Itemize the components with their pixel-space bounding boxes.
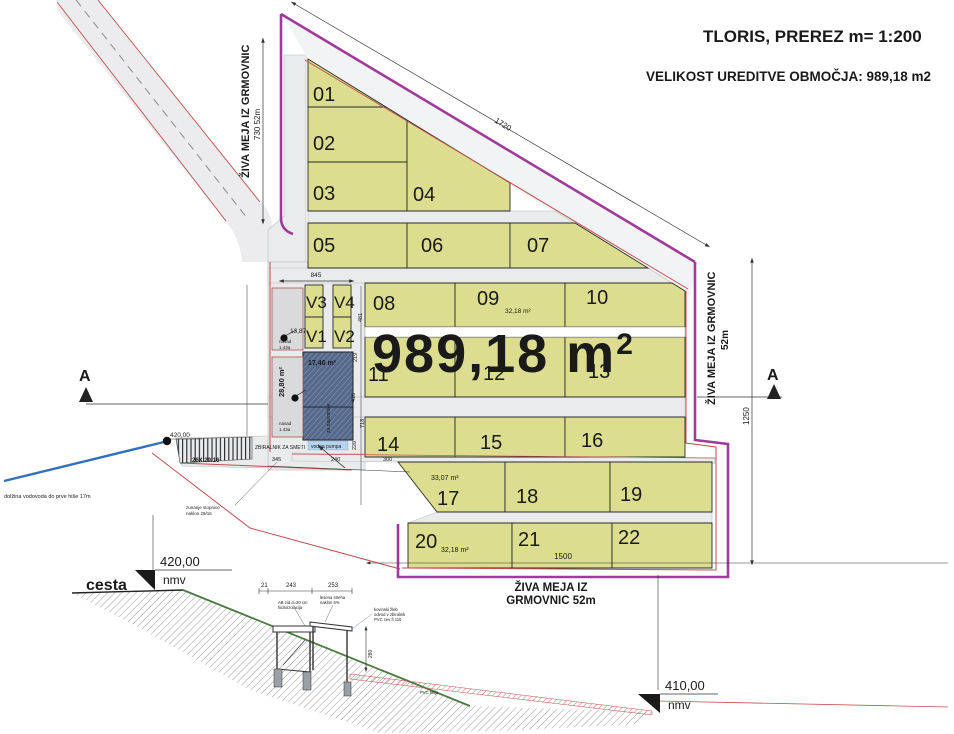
parcel-note-2: nasad xyxy=(279,421,292,426)
plot-label-21: 21 xyxy=(518,529,540,551)
plot-cell xyxy=(455,417,565,457)
dim-walk-345: 345 xyxy=(272,457,281,463)
plot-label-19: 19 xyxy=(620,484,642,506)
hedge-label-right: ŽIVA MEJA IZ GRMOVNIC xyxy=(705,272,718,405)
plot-label-11: 11 xyxy=(368,364,389,386)
plot-label-07: 07 xyxy=(527,235,549,257)
leader-1 xyxy=(295,609,305,626)
stairs-leader xyxy=(235,462,277,505)
page-title: TLORIS, PREREZ m= 1:200 xyxy=(703,27,922,46)
elev-top-value: 420,00 xyxy=(160,554,200,569)
plot-label-18: 18 xyxy=(516,486,538,508)
water-note: dolžina vodovoda do prve hiše 17m xyxy=(4,494,91,500)
site-plan-drawing: TLORIS, PREREZ m= 1:200 VELIKOST UREDITV… xyxy=(0,0,954,734)
drawing-svg: TLORIS, PREREZ m= 1:200 VELIKOST UREDITV… xyxy=(0,0,954,734)
note-red: PVC folija xyxy=(420,690,439,695)
note-blue-3: PVC cev fi 110 xyxy=(374,617,402,622)
v2-label: V2 xyxy=(334,327,355,346)
road-label: cesta xyxy=(86,577,127,594)
section-arrow-right xyxy=(767,384,781,399)
footing-3 xyxy=(344,682,351,696)
dim-stairs: 26X 29/16 xyxy=(192,458,220,464)
plot-label-12: 12 xyxy=(483,363,505,385)
plot-label-10: 10 xyxy=(586,287,608,309)
roof-slab-2 xyxy=(310,622,352,631)
plot-label-20: 20 xyxy=(415,531,437,553)
section-letter-left: A xyxy=(79,368,91,385)
plot-label-04: 04 xyxy=(413,184,435,206)
elev-bottom-unit: nmv xyxy=(668,698,691,712)
v1-label: V1 xyxy=(306,327,327,346)
dim-1500: 1500 xyxy=(554,552,572,561)
parcel-note-2b: 1.43a xyxy=(279,427,291,432)
water-pipe-line xyxy=(4,442,164,481)
road-elev-label: 420,00 xyxy=(170,432,190,439)
note-black-4: naklon 5% xyxy=(320,600,340,605)
section-arrow-left xyxy=(79,387,93,402)
dim-small-718: 718 xyxy=(360,419,366,428)
stairs-note-1: zunanje stopnice xyxy=(186,505,220,510)
plot-label-16: 16 xyxy=(581,430,603,452)
v3-label: V3 xyxy=(306,293,327,312)
plot-label-02: 02 xyxy=(313,133,335,155)
elev-top-unit: nmv xyxy=(163,573,186,587)
dim-walk-300: 300 xyxy=(383,457,392,463)
bins-note: ZBIRALNIK ZA SMETI xyxy=(255,445,305,451)
dim-21: 21 xyxy=(261,583,268,589)
plot-label-01: 01 xyxy=(313,84,335,106)
plot-cell xyxy=(455,283,565,327)
leader-blue xyxy=(352,614,372,629)
page-subtitle: VELIKOST UREDITVE OBMOČJA: 989,18 m2 xyxy=(646,69,931,84)
dim-height-label: 280 xyxy=(368,649,374,658)
dim-small-219: 219 xyxy=(353,353,359,362)
elev-bottom-value: 410,00 xyxy=(665,678,705,693)
sub-area-20: 32,18 m² xyxy=(441,547,469,554)
plot-label-22: 22 xyxy=(618,527,640,549)
dim-small-220: 220 xyxy=(352,441,358,450)
walkway-row1 xyxy=(308,211,574,223)
dim-253: 253 xyxy=(328,583,339,589)
hedge-label-bottom-1: ŽIVA MEJA IZ xyxy=(514,581,587,594)
dim-small-481: 481 xyxy=(358,313,364,322)
hedge-label-bottom-2: GRMOVNIC 52m xyxy=(506,595,595,607)
stairs-note-2: naklon 29/16 xyxy=(186,511,212,516)
section-notes-blue: kovinski žleb odvod v zbiralnik PVC cev … xyxy=(374,607,406,622)
hedge-label-left: ŽIVA MEJA IZ GRMOVNIC xyxy=(239,45,252,178)
parcel-note-1: nasad xyxy=(279,339,292,344)
plot-label-15: 15 xyxy=(480,432,502,454)
plot-label-17: 17 xyxy=(437,488,459,510)
section-dims: 21 243 253 xyxy=(261,583,339,589)
road-edge-left xyxy=(57,2,226,221)
pump-note: vodna pumpa xyxy=(311,444,342,450)
section-letter-right: A xyxy=(767,367,779,384)
plot-label-14: 14 xyxy=(377,434,399,456)
slope-red-extension xyxy=(658,701,948,707)
leader-2 xyxy=(325,605,333,622)
benchmark-420 xyxy=(135,570,155,590)
parcel-note-1b: 1.43a xyxy=(279,345,291,350)
hedge-dim-left: 730 52m xyxy=(253,109,262,140)
dim-walk-240: 240 xyxy=(331,457,340,463)
plot-cell xyxy=(565,283,685,327)
footing-2 xyxy=(303,672,311,690)
v4-label: V4 xyxy=(334,293,355,312)
plot-label-03: 03 xyxy=(313,183,335,205)
tenants-note: za najemnike xyxy=(326,403,332,433)
sub-area-17: 33,07 m² xyxy=(431,475,459,482)
dim-small-410: 410 xyxy=(351,393,357,402)
hedge-dim-right: 52m xyxy=(720,330,731,350)
red-area-side: 28,80 m² xyxy=(277,366,286,397)
red-area-top: 17,40 m² xyxy=(308,360,337,367)
area-sup: 2 xyxy=(616,328,635,361)
note-black-2: hidroizolacija xyxy=(278,605,303,610)
section-notes-black: AB zid d=20 cm hidroizolacija lesena str… xyxy=(278,595,346,610)
road-edge-right xyxy=(98,0,260,202)
footing-1 xyxy=(274,669,282,687)
dim-243: 243 xyxy=(286,583,297,589)
plot-label-06: 06 xyxy=(421,235,443,257)
plot-label-13: 13 xyxy=(588,361,610,383)
dim-1250: 1250 xyxy=(742,407,751,425)
plot-label-05: 05 xyxy=(313,235,335,257)
walkway-row5 xyxy=(408,512,712,523)
plot-label-09: 09 xyxy=(477,288,499,310)
spot-elev-label: 13,87 xyxy=(290,328,307,335)
plot-label-08: 08 xyxy=(373,293,395,315)
dim-845: 845 xyxy=(311,272,322,279)
sub-area-09: 32,18 m² xyxy=(505,308,531,315)
roof-slab-1 xyxy=(273,626,315,632)
